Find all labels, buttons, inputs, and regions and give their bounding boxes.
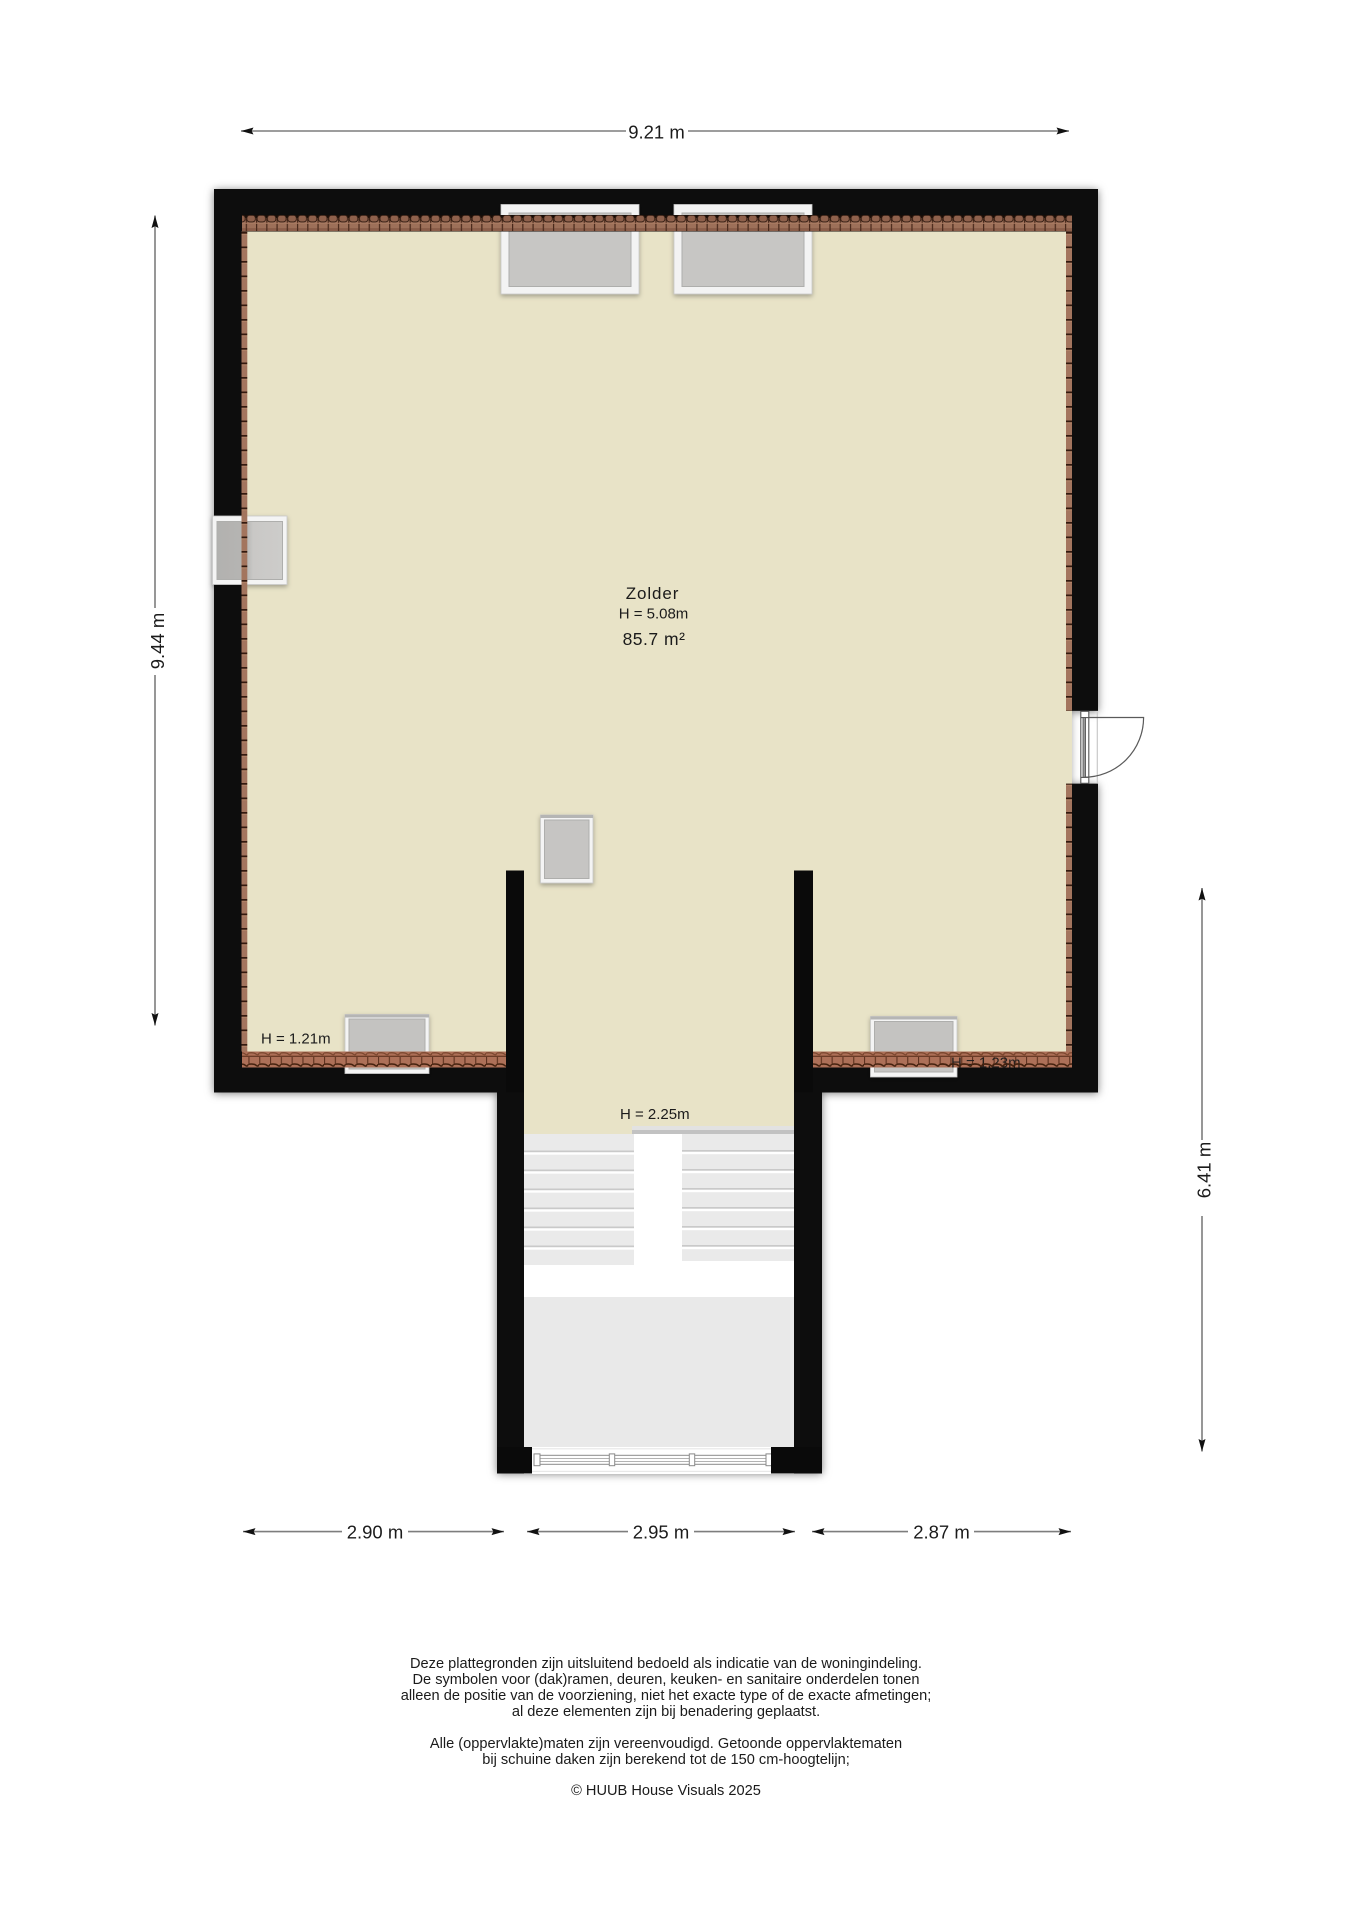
svg-text:2.95 m: 2.95 m — [633, 1522, 690, 1543]
svg-text:H = 5.08m: H = 5.08m — [619, 606, 689, 623]
svg-text:bij schuine daken zijn bereken: bij schuine daken zijn berekend tot de 1… — [482, 1752, 850, 1768]
svg-text:85.7 m²: 85.7 m² — [623, 629, 686, 649]
svg-text:Zolder: Zolder — [626, 584, 680, 603]
svg-text:9.21 m: 9.21 m — [628, 122, 685, 143]
svg-text:Deze plattegronden zijn uitslu: Deze plattegronden zijn uitsluitend bedo… — [410, 1656, 922, 1672]
svg-text:6.41 m: 6.41 m — [1194, 1142, 1215, 1199]
svg-text:Alle (oppervlakte)maten zijn v: Alle (oppervlakte)maten zijn vereenvoudi… — [430, 1736, 902, 1752]
svg-text:De symbolen voor (dak)ramen, d: De symbolen voor (dak)ramen, deuren, keu… — [412, 1672, 919, 1688]
svg-text:alleen de positie van de voorz: alleen de positie van de voorziening, ni… — [401, 1688, 932, 1704]
svg-text:H = 1.21m: H = 1.21m — [261, 1031, 331, 1048]
svg-text:2.87 m: 2.87 m — [913, 1522, 970, 1543]
svg-text:H = 2.25m: H = 2.25m — [620, 1106, 690, 1123]
svg-text:H = 1.23m: H = 1.23m — [951, 1055, 1021, 1072]
svg-text:© HUUB House Visuals 2025: © HUUB House Visuals 2025 — [571, 1783, 761, 1799]
svg-text:al deze elementen zijn bij ben: al deze elementen zijn bij benadering ge… — [512, 1704, 820, 1720]
svg-text:2.90 m: 2.90 m — [347, 1522, 404, 1543]
svg-text:9.44 m: 9.44 m — [147, 613, 168, 670]
